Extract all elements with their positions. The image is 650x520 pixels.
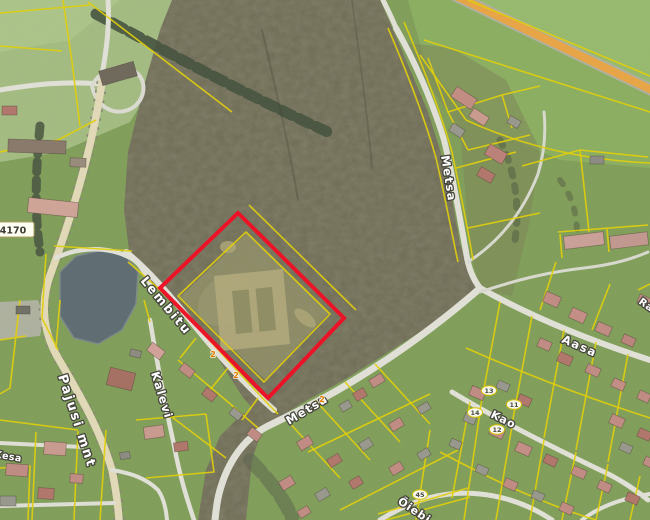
house-number: 2	[210, 350, 216, 359]
house-number: 2	[233, 371, 239, 380]
house-number: 2	[319, 395, 325, 404]
aerial-cadastral-map[interactable]: Pajusi mntLembituKaleviMetsaMetsaAasaKao…	[0, 0, 650, 520]
road-number-text: 4170	[0, 226, 27, 237]
parcel-number: 13	[484, 387, 493, 395]
parcel-number: 12	[492, 426, 501, 434]
grain-overlay	[0, 0, 650, 520]
parcel-number: 11	[509, 401, 519, 409]
parcel-number: 14	[470, 409, 480, 417]
aerial-grain-texture	[0, 0, 650, 520]
map-canvas[interactable]: Pajusi mntLembituKaleviMetsaMetsaAasaKao…	[0, 0, 650, 520]
parcel-number: 45	[415, 491, 425, 499]
